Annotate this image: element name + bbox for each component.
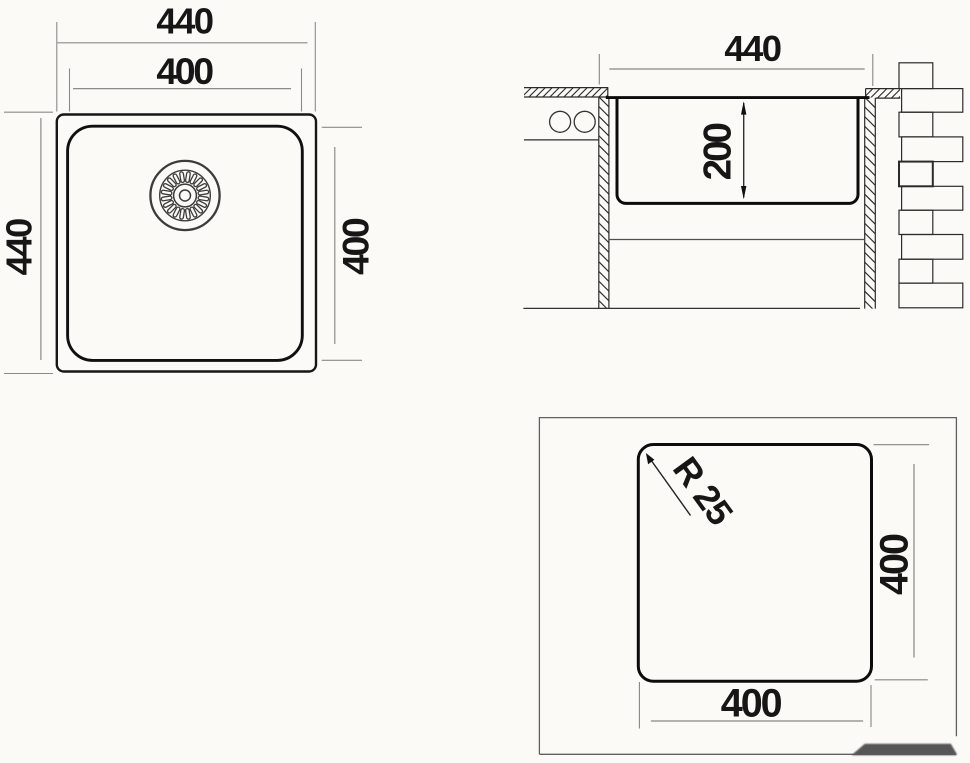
svg-text:400: 400 — [873, 534, 917, 595]
svg-text:400: 400 — [721, 682, 782, 726]
svg-text:440: 440 — [0, 219, 39, 275]
svg-text:200: 200 — [696, 124, 739, 181]
svg-text:440: 440 — [724, 28, 780, 69]
svg-text:400: 400 — [156, 50, 213, 92]
svg-text:400: 400 — [335, 218, 377, 275]
svg-text:440: 440 — [156, 0, 212, 41]
